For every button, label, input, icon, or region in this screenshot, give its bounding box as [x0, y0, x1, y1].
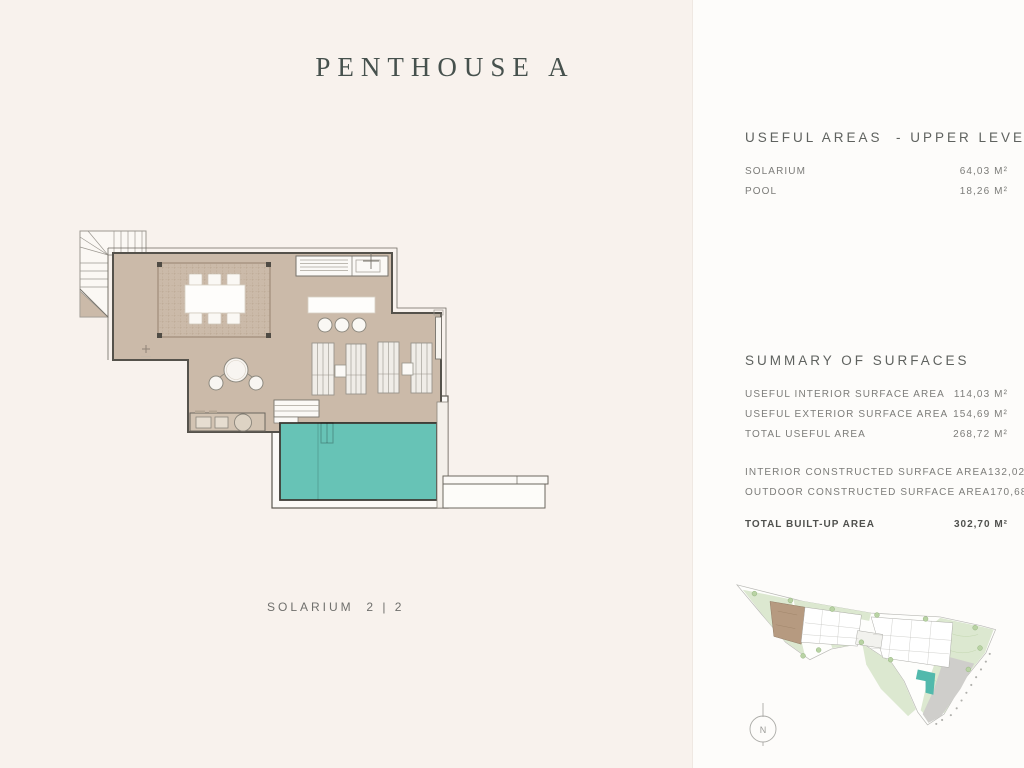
summary-heading: SUMMARY OF SURFACES — [745, 353, 1008, 368]
area-row-label: SOLARIUM — [745, 166, 806, 177]
bar-stool — [352, 318, 366, 332]
summary-row-value: 114,03 M² — [954, 389, 1008, 400]
area-row-value: 64,03 M² — [960, 166, 1008, 177]
useful-areas-heading: USEFUL AREAS - UPPER LEVEL — [745, 130, 1008, 145]
outdoor-kitchen-counter — [296, 253, 388, 276]
summary-row: INTERIOR CONSTRUCTED SURFACE AREA 132,02… — [745, 462, 1008, 482]
side-table — [335, 365, 346, 377]
summary-total-row: TOTAL BUILT-UP AREA 302,70 M² — [745, 514, 1008, 534]
floor-plan — [78, 225, 550, 515]
compass: N — [746, 700, 782, 752]
page-title: PENTHOUSE A — [190, 52, 700, 83]
brochure-page: PENTHOUSE A — [0, 0, 1024, 768]
pool — [280, 423, 437, 500]
column-detail — [434, 310, 443, 359]
summary-row-value: 170,68 M² — [990, 487, 1024, 498]
area-row: POOL 18,26 M² — [745, 181, 1008, 201]
summary-row: TOTAL USEFUL AREA 268,72 M² — [745, 424, 1008, 444]
summary-row-value: 154,69 M² — [953, 409, 1008, 420]
planter — [443, 476, 548, 508]
summary-total-value: 302,70 M² — [954, 519, 1008, 530]
summary-total-label: TOTAL BUILT-UP AREA — [745, 519, 875, 530]
useful-areas-section: USEFUL AREAS - UPPER LEVEL SOLARIUM 64,0… — [745, 130, 1008, 201]
side-table — [402, 363, 413, 375]
area-row-value: 18,26 M² — [960, 186, 1008, 197]
summary-section: SUMMARY OF SURFACES USEFUL INTERIOR SURF… — [745, 353, 1008, 534]
summary-row-label: USEFUL INTERIOR SURFACE AREA — [745, 389, 945, 400]
summary-row: OUTDOOR CONSTRUCTED SURFACE AREA 170,68 … — [745, 482, 1008, 502]
summary-row: USEFUL INTERIOR SURFACE AREA 114,03 M² — [745, 384, 1008, 404]
summary-row: USEFUL EXTERIOR SURFACE AREA 154,69 M² — [745, 404, 1008, 424]
pergola-dining — [157, 262, 271, 338]
summary-row-label: TOTAL USEFUL AREA — [745, 429, 866, 440]
building-a-highlight — [770, 601, 805, 644]
summary-row-label: INTERIOR CONSTRUCTED SURFACE AREA — [745, 467, 988, 478]
bbq-counter — [190, 411, 265, 432]
bar-stool — [335, 318, 349, 332]
plan-caption: SOLARIUM 2 | 2 — [267, 600, 404, 614]
area-row: SOLARIUM 64,03 M² — [745, 161, 1008, 181]
area-row-label: POOL — [745, 186, 777, 197]
bar-stool — [318, 318, 332, 332]
summary-row-label: USEFUL EXTERIOR SURFACE AREA — [745, 409, 948, 420]
summary-row-value: 268,72 M² — [953, 429, 1008, 440]
summary-row-label: OUTDOOR CONSTRUCTED SURFACE AREA — [745, 487, 990, 498]
compass-label: N — [760, 725, 767, 735]
summary-row-value: 132,02 M² — [988, 467, 1024, 478]
